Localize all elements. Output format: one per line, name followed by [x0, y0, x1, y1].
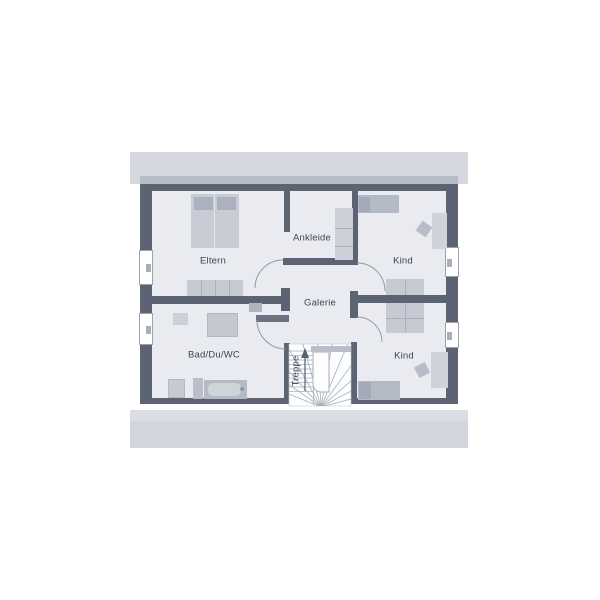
door-arc-kind-top	[357, 263, 385, 291]
room-label-bad: Bad/Du/WC	[188, 350, 240, 361]
room-label-eltern: Eltern	[200, 256, 226, 267]
room-label-kind-top: Kind	[393, 256, 413, 267]
room-label-kind-bottom: Kind	[394, 351, 414, 362]
door-arc-kind-bottom	[357, 317, 382, 342]
door-arc-eltern	[255, 260, 283, 288]
room-label-treppe: Treppe	[291, 356, 302, 387]
room-label-ankleide: Ankleide	[293, 233, 331, 244]
room-label-galerie: Galerie	[304, 298, 336, 309]
floor-plan-page: Eltern Ankleide Kind Galerie Bad/Du/WC K…	[0, 0, 600, 600]
plan-linework	[0, 0, 600, 600]
stair-top-step	[311, 346, 351, 352]
stair-landing	[313, 352, 329, 392]
door-arc-bad	[257, 320, 286, 349]
